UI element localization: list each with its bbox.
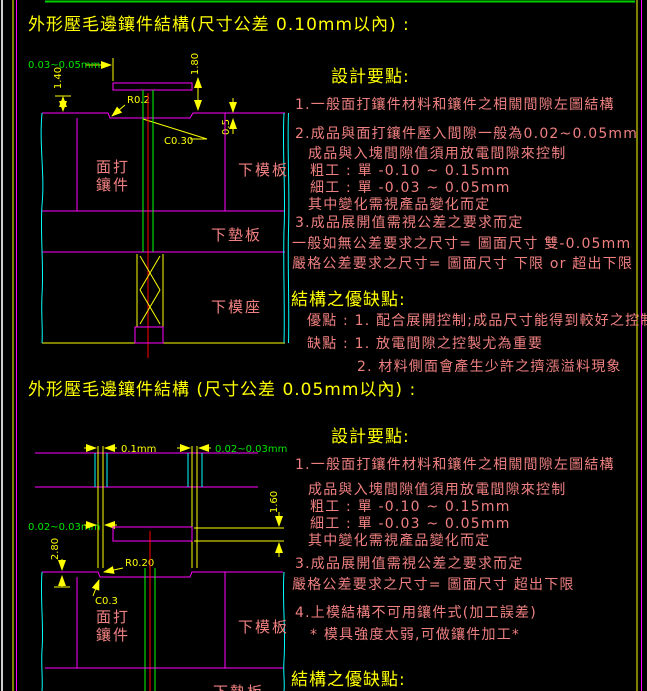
section1-pros-heading: 結構之優缺點: xyxy=(291,285,406,310)
d1-r-leader xyxy=(112,105,125,116)
section1-pros-2: 缺點 : 1. 放電間隙之控製尤為重要 xyxy=(307,333,543,353)
d1-dim-c-text: C0.30 xyxy=(164,136,193,147)
d2-dim-gap-left-text: 0.02~0.03mm xyxy=(28,522,100,533)
d1-label-insert-line2: 鑲件 xyxy=(96,176,130,194)
d2-label-insert-line2: 鑲件 xyxy=(96,626,130,644)
d1-screw-head xyxy=(135,327,163,343)
d2-label-backing-plate: 下墊板 xyxy=(213,683,264,691)
d1-label-insert-line1: 面打 xyxy=(96,158,130,176)
d2-label-insert-line1: 面打 xyxy=(96,608,130,626)
d1-break-left xyxy=(41,113,43,343)
section1-design-heading: 設計要點: xyxy=(331,62,410,87)
d2-c-leader xyxy=(93,580,99,596)
d2-label-lower-plate: 下模板 xyxy=(238,618,289,636)
section2-line-6: 3.成品展開值需視公差之要求而定 xyxy=(295,553,524,573)
d2-dim-h-left-text: 2.80 xyxy=(50,538,61,560)
d1-label-lower-plate: 下模板 xyxy=(238,161,289,179)
section2-line-7: 嚴格公差要求之尺寸= 圖面尺寸 超出下限 xyxy=(292,574,575,594)
section2-title: 外形壓毛邊鑲件結構 (尺寸公差 0.05mm以內) : xyxy=(28,375,416,400)
d1-label-die-holder: 下模座 xyxy=(211,298,262,316)
d1-dim-h1-text: 1.40 xyxy=(53,67,64,89)
section1-line-1: 1.一般面打鑲件材料和鑲件之相關間隙左圖結構 xyxy=(295,94,615,114)
section2-pros-heading: 結構之優缺點: xyxy=(291,665,406,690)
section1-title: 外形壓毛邊鑲件結構(尺寸公差 0.10mm以內) : xyxy=(28,10,410,35)
d2-insert-bar xyxy=(113,527,192,541)
section1-line-8: 一般如無公差要求之尺寸= 圖面尺寸 雙-0.05mm xyxy=(292,233,631,253)
d2-extension-lines xyxy=(98,446,197,568)
d1-break-right1 xyxy=(283,113,284,343)
section1-pros-3: 2. 材料側面會產生少許之擠漲溢料現象 xyxy=(357,356,622,376)
d1-break-right2 xyxy=(288,113,289,343)
d1-dim-r-text: R0.2 xyxy=(127,95,150,106)
section2-line-8: 4.上模結構不可用鑲件式(加工誤差) xyxy=(295,602,537,622)
d2-r-leader xyxy=(104,568,123,572)
d1-spring xyxy=(137,254,163,327)
d1-dim-gap-text: 0.03~0.05mm xyxy=(28,60,100,71)
section1-line-6: 其中變化需視產品變化而定 xyxy=(308,194,490,214)
d1-strip xyxy=(113,83,192,90)
section1-line-2: 2.成品與面打鑲件壓入間隙一般為0.02~0.05mm xyxy=(295,123,638,143)
d2-dim-h-right-text: 1.60 xyxy=(269,491,280,513)
d1-dim-h2-text: 1.80 xyxy=(190,53,201,75)
diagram1: 0.03~0.05mm 1.40 1.80 R0.2 C0.30 0.5 xyxy=(28,53,289,358)
d1-top-surface xyxy=(42,113,285,118)
cad-drawing-page: 0.03~0.05mm 1.40 1.80 R0.2 C0.30 0.5 xyxy=(0,0,647,691)
d2-strip-cut-edges xyxy=(95,453,202,487)
d2-top-surface xyxy=(42,572,283,577)
section1-pros-1: 優點 : 1. 配合展開控制;成品尺寸能得到較好之控制 xyxy=(307,310,647,330)
section2-design-heading: 設計要點: xyxy=(331,422,410,447)
d2-dim-c-text: C0.3 xyxy=(95,596,118,607)
section2-line-1: 1.一般面打鑲件材料和鑲件之相關間隙左圖結構 xyxy=(295,454,615,474)
section2-line-5: 其中變化需視產品變化而定 xyxy=(308,530,490,550)
section2-line-9: * 模具強度太弱,可做鑲件加工* xyxy=(310,624,520,644)
d2-dim-slot-text: 0.1mm xyxy=(121,444,156,455)
d2-dim-gap-right-text: 0.02~0.03mm xyxy=(215,444,287,455)
section1-line-9: 嚴格公差要求之尺寸= 圖面尺寸 下限 or 超出下限 xyxy=(292,253,633,273)
d1-dim-step-text: 0.5 xyxy=(221,119,232,135)
section1-line-7: 3.成品展開值需視公差之要求而定 xyxy=(295,212,524,232)
d2-break-left xyxy=(41,572,42,691)
d1-label-backing-plate: 下墊板 xyxy=(211,226,262,244)
diagram2: 0.1mm 0.02~0.03mm 0.02~0.03mm 1.60 2.80 … xyxy=(28,444,289,691)
